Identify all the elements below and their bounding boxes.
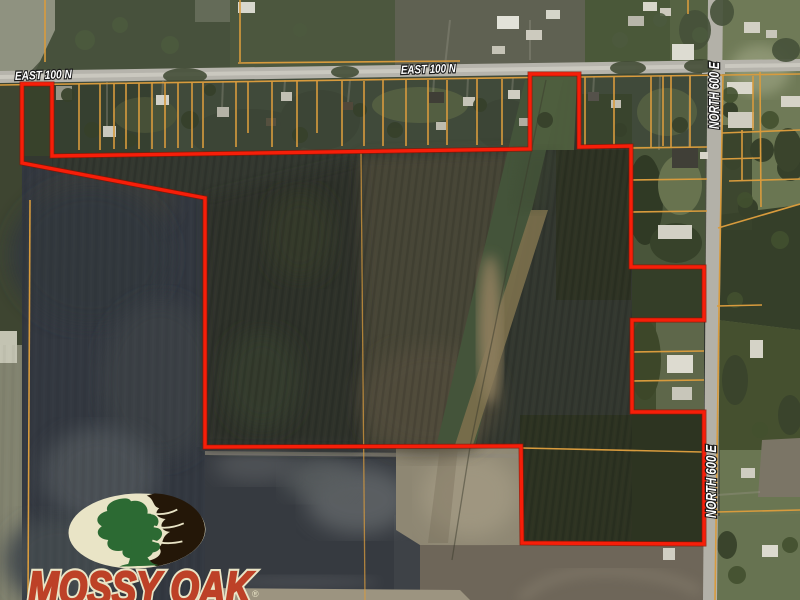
svg-text:MOSSY OAK: MOSSY OAK — [28, 562, 254, 600]
svg-text:®: ® — [252, 589, 259, 599]
svg-text:EAST 100 N: EAST 100 N — [401, 61, 457, 77]
svg-text:NORTH 600 E: NORTH 600 E — [704, 444, 720, 518]
svg-text:EAST 100 N: EAST 100 N — [15, 67, 73, 83]
svg-text:NORTH 600 E: NORTH 600 E — [707, 61, 723, 129]
